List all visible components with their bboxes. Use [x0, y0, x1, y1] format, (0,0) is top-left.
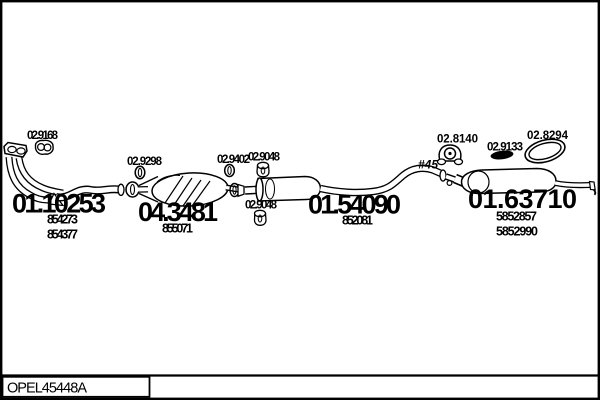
joint-ring-icon — [135, 166, 145, 178]
part-code-joint-ring: 02.9298 — [127, 156, 163, 168]
part-code-hanger-upper: 02.9048 — [248, 152, 281, 164]
rear-bracket-icon — [438, 145, 463, 165]
hanger-upper-icon — [257, 162, 269, 177]
front-clamp-icon — [35, 140, 53, 154]
oe-ref-rear-silencer-1: 5852857 — [496, 210, 537, 224]
exhaust-parts-diagram: 02.9168 01.10253 854273 854377 02.9298 0… — [0, 0, 600, 400]
outlet-ring-icon — [225, 165, 235, 177]
oe-ref-front-pipe-2: 854377 — [47, 228, 78, 242]
part-code-outlet-ring: 02.9402 — [217, 154, 250, 166]
part-code-rear-gasket: 02.9133 — [487, 142, 523, 154]
diagram-canvas: 02.9168 01.10253 854273 854377 02.9298 0… — [0, 0, 600, 400]
oe-ref-catalyst: 855071 — [162, 222, 193, 236]
drawing-code: OPEL45448A — [7, 381, 87, 397]
oe-ref-centre-silencer: 852081 — [342, 214, 373, 228]
oe-ref-front-pipe-1: 854273 — [47, 213, 78, 227]
pipe-diameter-note: #45 — [418, 158, 438, 172]
part-code-front-clamp: 02.9168 — [27, 130, 59, 142]
part-code-hanger-lower: 02.9048 — [245, 200, 278, 212]
oe-ref-rear-silencer-2: 5852990 — [496, 225, 538, 239]
part-code-rear-clamp-ring: 02.8294 — [527, 130, 569, 142]
part-code-rear-bracket: 02.8140 — [437, 134, 478, 146]
hanger-lower-icon — [255, 210, 267, 225]
